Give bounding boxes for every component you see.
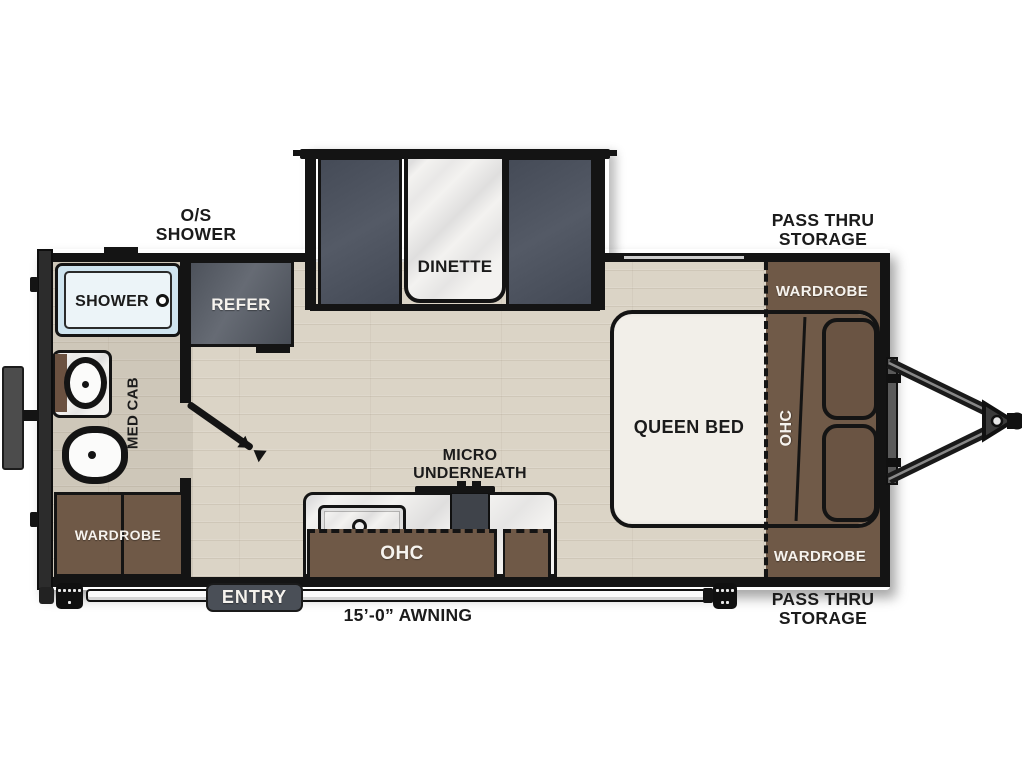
dinette-bench-right bbox=[506, 157, 594, 307]
stove bbox=[450, 492, 490, 534]
slideout-top-cap-left bbox=[293, 150, 302, 156]
dinette-label: DINETTE bbox=[404, 258, 506, 276]
rear-bumper-mount bbox=[23, 410, 39, 421]
os-shower-label-line2: SHOWER bbox=[136, 225, 256, 244]
wardrobe-front-bottom-label: WARDROBE bbox=[764, 548, 876, 565]
rear-wall-nub-bottom bbox=[30, 512, 38, 527]
refrigerator-notch bbox=[256, 346, 290, 353]
slideout-bottom-edge bbox=[310, 304, 600, 311]
micro-label-line1: MICRO bbox=[395, 447, 545, 464]
stove-top-bar bbox=[415, 486, 495, 493]
shower-label: SHOWER bbox=[66, 293, 158, 310]
bathroom-wall-upper bbox=[180, 262, 191, 403]
rear-wall bbox=[37, 249, 53, 590]
slideout-top-bar bbox=[300, 149, 610, 159]
jack-pad-left bbox=[39, 587, 54, 604]
stabilizer-jack-left bbox=[56, 583, 83, 609]
kitchen-ohc-label: OHC bbox=[307, 543, 497, 565]
bed-pillow-bottom bbox=[822, 424, 878, 522]
pass-thru-bottom-label-line2: STORAGE bbox=[757, 609, 889, 628]
rear-wall-nub-top bbox=[30, 277, 38, 292]
pass-thru-dashed-line bbox=[764, 262, 768, 577]
slideout-top-cap-right bbox=[608, 150, 617, 156]
bed-pillow-top bbox=[822, 318, 878, 420]
dinette-bench-left bbox=[318, 157, 402, 307]
awning-length-label: 15’-0” AWNING bbox=[300, 606, 516, 625]
stabilizer-jack-right bbox=[713, 583, 737, 609]
top-wall-left bbox=[48, 253, 310, 262]
dinette-table bbox=[404, 155, 506, 303]
bed-ohc-label: OHC bbox=[778, 363, 796, 493]
queen-bed-label: QUEEN BED bbox=[613, 418, 765, 437]
sink-drain bbox=[82, 381, 89, 388]
floorplan-canvas: DINETTE QUEEN BED OHC WARDROBE WARDROBE … bbox=[0, 0, 1024, 768]
rear-bumper-storage bbox=[2, 366, 24, 470]
shower-drain bbox=[156, 294, 169, 307]
awning-bar bbox=[86, 589, 710, 602]
ohc-cabinet-right bbox=[503, 529, 551, 577]
wardrobe-front-top-label: WARDROBE bbox=[766, 283, 878, 300]
pass-thru-top-label-line2: STORAGE bbox=[757, 230, 889, 249]
toilet-drain bbox=[88, 451, 96, 459]
refer-label: REFER bbox=[188, 295, 294, 315]
micro-label-line2: UNDERNEATH bbox=[395, 465, 545, 482]
door-swing-arrow-icon bbox=[237, 434, 267, 464]
pass-thru-bottom-label-line1: PASS THRU bbox=[757, 590, 889, 609]
entry-badge: ENTRY bbox=[206, 583, 303, 612]
pass-thru-top-label-line1: PASS THRU bbox=[757, 211, 889, 230]
bottom-wall bbox=[48, 577, 890, 587]
a-frame-hitch bbox=[886, 350, 1022, 492]
top-wall-bracket bbox=[104, 247, 138, 255]
entry-label: ENTRY bbox=[222, 587, 287, 608]
top-wall-vent-line bbox=[624, 256, 744, 259]
wardrobe-left-label: WARDROBE bbox=[54, 527, 182, 543]
awning-end-cap-right bbox=[703, 588, 713, 603]
os-shower-label-line1: O/S bbox=[136, 206, 256, 225]
slideout-frame-left bbox=[305, 152, 316, 310]
slideout-frame-right bbox=[594, 152, 605, 310]
